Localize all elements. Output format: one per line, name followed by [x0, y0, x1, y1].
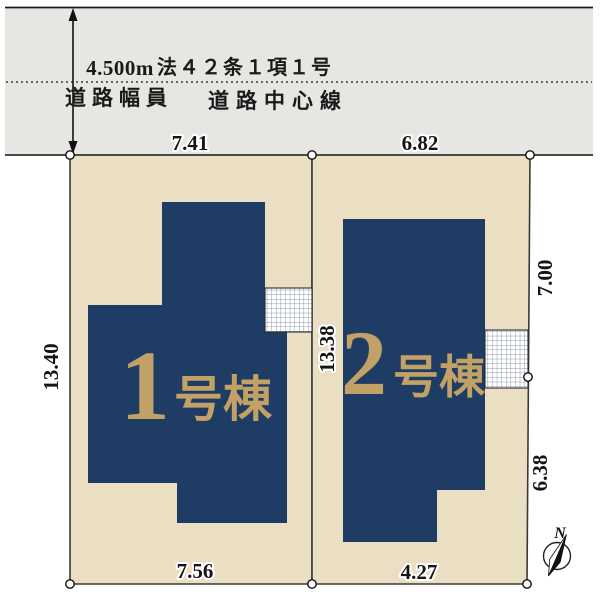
porch-hatch-lot2 [485, 330, 528, 388]
lot1-dimension-left: 13.40 [39, 343, 63, 390]
boundary-point [524, 373, 532, 381]
lot1-dimension-top: 7.41 [172, 131, 209, 155]
boundary-point [308, 151, 316, 159]
road-centerline-caption: 道路中心線 [208, 89, 348, 113]
site-plan: 4.500m 法４２条１項１号 道路幅員 道路中心線 7.41 7.56 13.… [0, 0, 600, 597]
north-label: N [553, 525, 567, 542]
porch-hatch-lot1 [265, 288, 312, 332]
lot2-dimension-top: 6.82 [402, 131, 439, 155]
road-band [5, 7, 593, 155]
boundary-point [523, 580, 531, 588]
lot2-dimension-left: 13.38 [315, 325, 339, 372]
lot2-dimension-right-lower: 6.38 [528, 455, 552, 492]
boundary-point [66, 580, 74, 588]
road-law-reference: 法４２条１項１号 [157, 55, 333, 79]
boundary-point [66, 151, 74, 159]
north-compass-icon: N [544, 525, 571, 576]
boundary-point [308, 580, 316, 588]
road-width-caption: 道路幅員 [65, 86, 173, 110]
building-1-number: 1 [120, 330, 170, 441]
lot2-dimension-bottom: 4.27 [401, 560, 438, 584]
lot1-dimension-bottom: 7.56 [177, 559, 214, 583]
lot2-dimension-right-upper: 7.00 [533, 260, 557, 297]
road-width-value: 4.500m [86, 56, 154, 80]
building-2-number: 2 [341, 312, 387, 414]
boundary-point [526, 151, 534, 159]
site-plan-canvas: 4.500m 法４２条１項１号 道路幅員 道路中心線 7.41 7.56 13.… [0, 0, 600, 597]
building-1-suffix: 号棟 [174, 372, 273, 427]
building-2-suffix: 号棟 [393, 352, 486, 403]
